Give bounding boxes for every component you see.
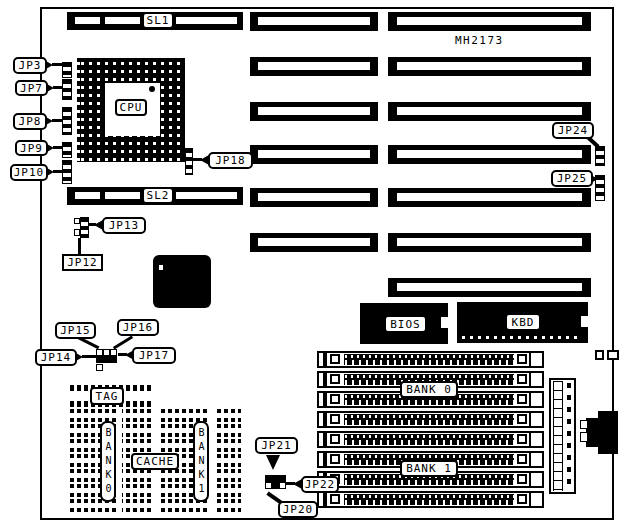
kbd-chip-pins bbox=[462, 336, 582, 339]
keyboard-din-connector-body bbox=[586, 418, 600, 447]
jp14-17-header bbox=[96, 349, 117, 363]
mount-pad bbox=[607, 350, 619, 360]
jp9-label: JP9 bbox=[15, 140, 48, 156]
simm-socket bbox=[317, 431, 544, 448]
isa-slot-segment bbox=[388, 12, 591, 31]
jp16-label: JP16 bbox=[117, 319, 159, 336]
jp13-label: JP13 bbox=[102, 217, 146, 234]
power-connector-pins bbox=[553, 381, 563, 491]
tag-label: TAG bbox=[90, 387, 124, 405]
jp25-label: JP25 bbox=[551, 170, 593, 187]
jp14-label: JP14 bbox=[35, 349, 77, 366]
cache-label: CACHE bbox=[131, 453, 179, 470]
slot-stripe bbox=[105, 17, 140, 24]
power-connector-tabs bbox=[567, 383, 571, 489]
jp21-label: JP21 bbox=[255, 437, 298, 454]
kbd-label: KBD bbox=[505, 313, 541, 331]
bios-chip-notch bbox=[441, 317, 448, 328]
isa-slot-segment bbox=[388, 233, 591, 252]
isa-slot-segment bbox=[388, 57, 591, 76]
jp18-header bbox=[185, 148, 193, 175]
cache-bank1-label: BANK1 bbox=[193, 421, 209, 502]
kbd-chip-notch bbox=[581, 316, 588, 327]
jp15-label: JP15 bbox=[55, 322, 96, 339]
jp13-pin bbox=[74, 229, 80, 236]
keyboard-controller-chip: KBD bbox=[457, 302, 588, 343]
jp10-header bbox=[62, 160, 72, 184]
slot-stripe bbox=[176, 192, 237, 199]
jp20-22-header bbox=[265, 475, 286, 489]
jp13-header bbox=[80, 217, 89, 238]
slot-stripe bbox=[176, 17, 237, 24]
isa-slot-segment bbox=[388, 102, 591, 121]
cpu-socket: CPU bbox=[77, 58, 185, 162]
logic-chip bbox=[153, 255, 211, 308]
cache-chip-gap bbox=[209, 409, 214, 513]
simm-bank0-label: BANK 0 bbox=[400, 381, 458, 398]
power-connector bbox=[549, 378, 576, 494]
keyboard-din-pin bbox=[580, 420, 588, 429]
bios-chip: BIOS bbox=[360, 303, 448, 344]
jp12-label: JP12 bbox=[62, 254, 103, 271]
slot-stripe bbox=[75, 17, 100, 24]
board-model-text: MH2173 bbox=[455, 34, 504, 47]
jp3-header bbox=[62, 62, 72, 78]
jp7-header bbox=[62, 79, 72, 100]
logic-chip-pin1-dot bbox=[159, 265, 163, 270]
jp14-17-pin bbox=[96, 364, 103, 371]
isa-slot-segment bbox=[250, 188, 378, 207]
jp24-label: JP24 bbox=[552, 122, 594, 139]
slot-stripe bbox=[105, 192, 140, 199]
slot-sl2: SL2 bbox=[67, 187, 243, 205]
isa-slot-segment bbox=[250, 57, 378, 76]
slot-stripe bbox=[75, 192, 100, 199]
isa-slot-segment bbox=[388, 278, 591, 297]
jp20-label: JP20 bbox=[278, 501, 318, 518]
jp13-pin bbox=[74, 218, 80, 224]
cpu-pin1-dot bbox=[149, 86, 155, 92]
cache-chip-gap bbox=[117, 409, 122, 513]
slot-sl1-label: SL1 bbox=[142, 12, 174, 29]
cache-bank0-label: BANK0 bbox=[100, 421, 116, 502]
isa-slot-segment bbox=[388, 145, 591, 164]
simm-socket bbox=[317, 411, 544, 428]
simm-socket bbox=[317, 491, 544, 508]
isa-slot-segment bbox=[250, 233, 378, 252]
jp10-label: JP10 bbox=[10, 164, 48, 181]
slot-sl1: SL1 bbox=[67, 12, 243, 30]
slot-sl2-label: SL2 bbox=[142, 187, 174, 204]
isa-slot-segment bbox=[388, 188, 591, 207]
jp8-label: JP8 bbox=[13, 113, 47, 130]
mount-pad bbox=[595, 350, 604, 360]
jp17-label: JP17 bbox=[132, 347, 176, 364]
simm-bank1-label: BANK 1 bbox=[400, 460, 458, 477]
keyboard-din-connector bbox=[598, 411, 618, 454]
isa-slot-segment bbox=[250, 145, 378, 164]
isa-slot-segment bbox=[250, 102, 378, 121]
isa-slot-segment bbox=[250, 12, 378, 31]
jp24-header bbox=[595, 146, 605, 166]
jp22-label: JP22 bbox=[301, 476, 339, 493]
jp18-label: JP18 bbox=[208, 152, 253, 169]
cpu-label: CPU bbox=[115, 99, 147, 116]
jp3-label: JP3 bbox=[13, 57, 47, 74]
jp8-header bbox=[62, 107, 72, 135]
jp9-header bbox=[62, 142, 72, 158]
bios-label: BIOS bbox=[384, 315, 427, 333]
keyboard-din-pin bbox=[580, 432, 588, 442]
jp7-label: JP7 bbox=[15, 80, 48, 96]
simm-socket bbox=[317, 351, 544, 368]
motherboard-diagram: MH2173 SL1 SL2 CPU bbox=[0, 0, 623, 527]
